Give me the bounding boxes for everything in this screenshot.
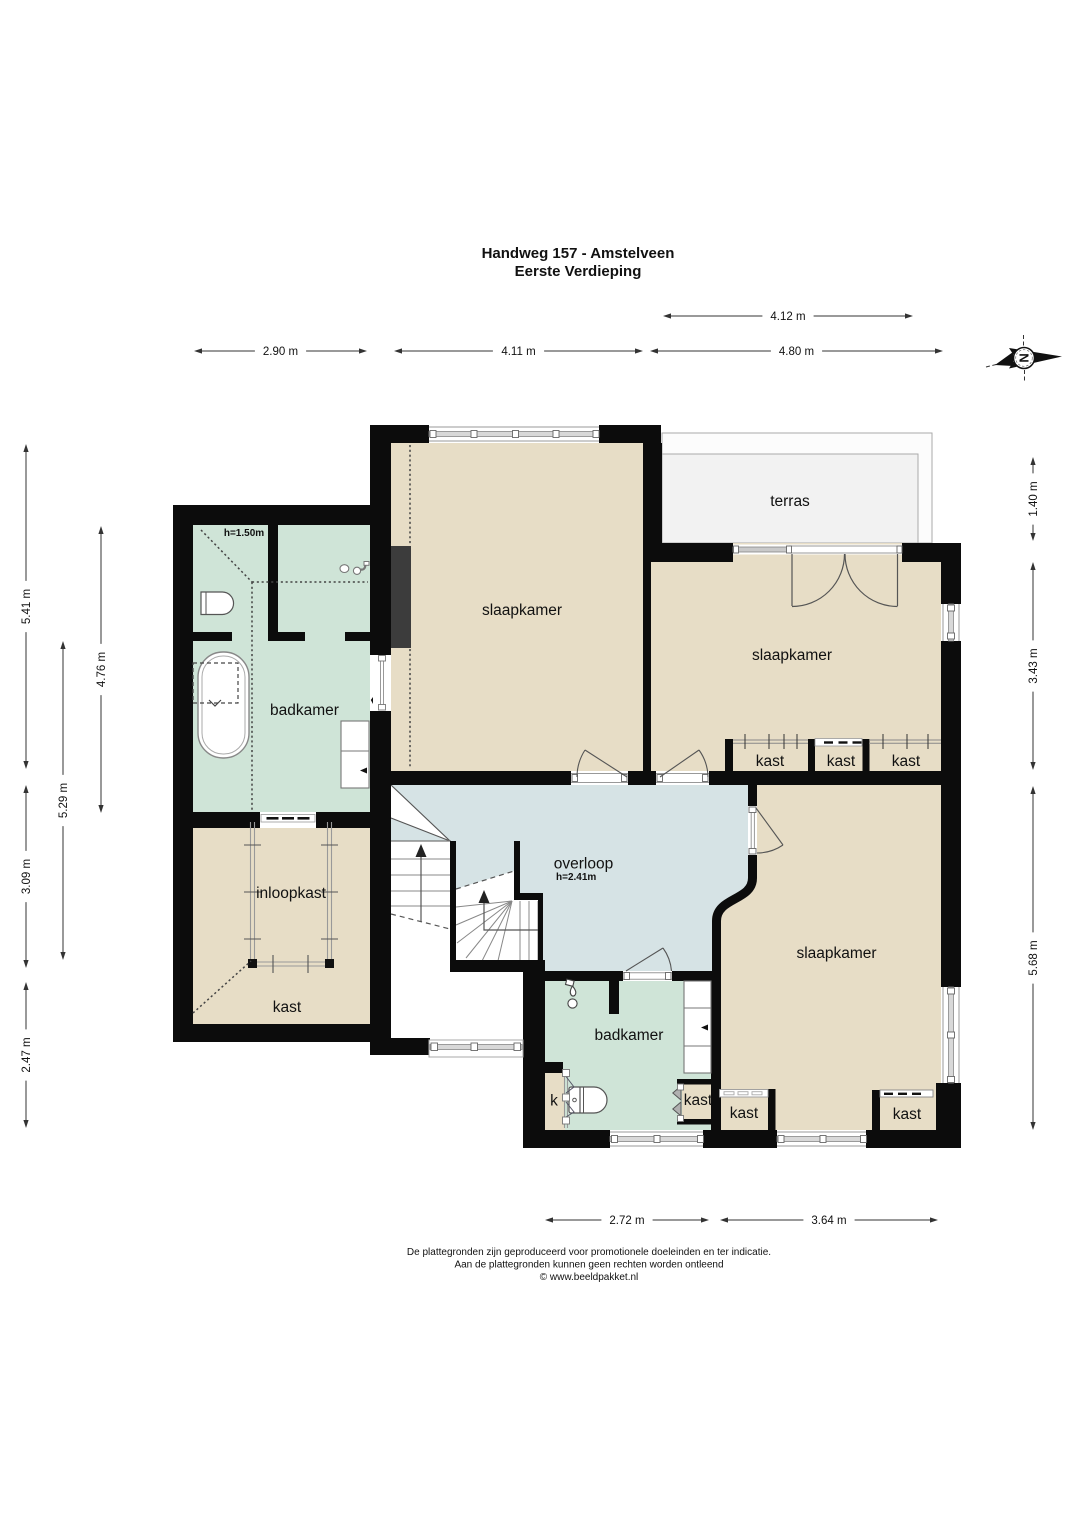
svg-text:5.41 m: 5.41 m (21, 589, 33, 624)
svg-text:badkamer: badkamer (270, 702, 339, 719)
svg-text:2.72 m: 2.72 m (609, 1215, 644, 1227)
svg-text:kast: kast (827, 753, 856, 770)
svg-text:k: k (550, 1093, 558, 1110)
svg-text:1.40 m: 1.40 m (1028, 481, 1040, 516)
svg-text:slaapkamer: slaapkamer (482, 602, 562, 619)
svg-text:5.29 m: 5.29 m (58, 783, 70, 818)
svg-text:Aan de plattegronden kunnen ge: Aan de plattegronden kunnen geen rechten… (454, 1260, 723, 1271)
svg-text:Eerste Verdieping: Eerste Verdieping (515, 263, 642, 280)
svg-text:kast: kast (893, 1106, 922, 1123)
svg-text:slaapkamer: slaapkamer (796, 945, 876, 962)
svg-text:inloopkast: inloopkast (256, 885, 326, 902)
svg-text:kast: kast (756, 753, 785, 770)
svg-text:h=1.50m: h=1.50m (224, 528, 264, 539)
svg-text:4.76 m: 4.76 m (96, 652, 108, 687)
svg-text:© www.beeldpakket.nl: © www.beeldpakket.nl (540, 1272, 639, 1283)
svg-text:4.11 m: 4.11 m (501, 346, 535, 358)
svg-text:overloop: overloop (554, 856, 613, 873)
svg-text:kast: kast (684, 1092, 713, 1109)
svg-text:3.64 m: 3.64 m (811, 1215, 846, 1227)
svg-text:kast: kast (892, 753, 921, 770)
svg-text:h=2.41m: h=2.41m (556, 872, 596, 883)
svg-text:badkamer: badkamer (595, 1027, 664, 1044)
svg-text:4.80 m: 4.80 m (779, 346, 814, 358)
svg-text:kast: kast (273, 999, 302, 1016)
svg-text:De plattegronden zijn geproduc: De plattegronden zijn geproduceerd voor … (407, 1247, 771, 1258)
svg-text:terras: terras (770, 493, 810, 510)
svg-text:3.09 m: 3.09 m (21, 859, 33, 894)
svg-text:2.90 m: 2.90 m (263, 346, 298, 358)
svg-text:4.12 m: 4.12 m (770, 311, 805, 323)
svg-text:3.43 m: 3.43 m (1028, 648, 1040, 683)
svg-text:5.68 m: 5.68 m (1028, 940, 1040, 975)
svg-text:Handweg 157 - Amstelveen: Handweg 157 - Amstelveen (482, 245, 675, 262)
svg-text:N: N (1017, 353, 1032, 362)
svg-text:kast: kast (730, 1105, 759, 1122)
svg-text:slaapkamer: slaapkamer (752, 647, 832, 664)
svg-text:2.47 m: 2.47 m (21, 1037, 33, 1072)
